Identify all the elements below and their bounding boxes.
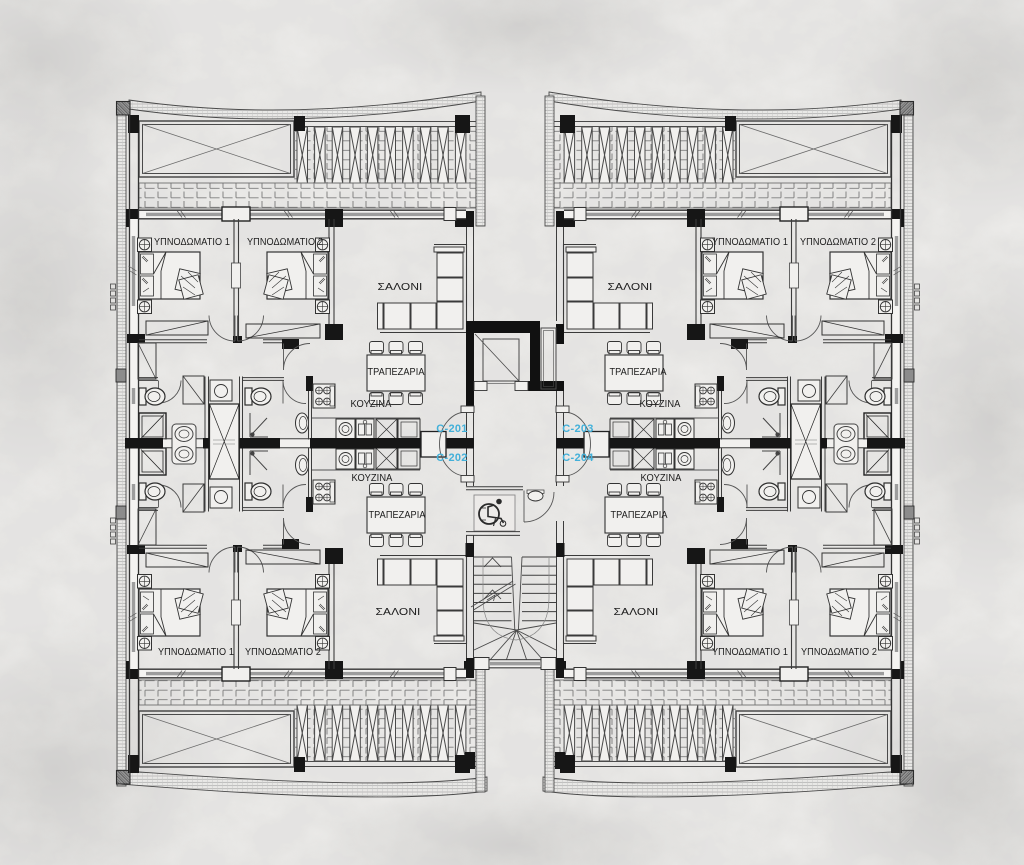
svg-text:ΥΠΝΟΔΩΜΑΤΙΟ 2: ΥΠΝΟΔΩΜΑΤΙΟ 2 <box>245 646 321 658</box>
svg-text:ΣΑΛΟΝΙ: ΣΑΛΟΝΙ <box>378 281 423 293</box>
svg-text:C-204: C-204 <box>562 452 594 464</box>
svg-text:C-202: C-202 <box>436 452 467 464</box>
svg-text:ΥΠΝΟΔΩΜΑΤΙΟ 2: ΥΠΝΟΔΩΜΑΤΙΟ 2 <box>801 646 877 658</box>
svg-text:ΣΑΛΟΝΙ: ΣΑΛΟΝΙ <box>614 606 659 618</box>
svg-text:ΤΡΑΠΕΖΑΡΙΑ: ΤΡΑΠΕΖΑΡΙΑ <box>611 509 668 521</box>
svg-text:ΥΠΝΟΔΩΜΑΤΙΟ 1: ΥΠΝΟΔΩΜΑΤΙΟ 1 <box>712 236 788 248</box>
svg-text:ΥΠΝΟΔΩΜΑΤΙΟ 2: ΥΠΝΟΔΩΜΑΤΙΟ 2 <box>247 236 323 248</box>
svg-text:ΥΠΝΟΔΩΜΑΤΙΟ 1: ΥΠΝΟΔΩΜΑΤΙΟ 1 <box>154 236 230 248</box>
svg-text:C-203: C-203 <box>562 423 593 435</box>
svg-text:ΥΠΝΟΔΩΜΑΤΙΟ 1: ΥΠΝΟΔΩΜΑΤΙΟ 1 <box>158 646 234 658</box>
svg-text:ΚΟΥΖΙΝΑ: ΚΟΥΖΙΝΑ <box>640 398 681 410</box>
svg-text:ΥΠΝΟΔΩΜΑΤΙΟ 1: ΥΠΝΟΔΩΜΑΤΙΟ 1 <box>712 646 788 658</box>
svg-text:ΚΟΥΖΙΝΑ: ΚΟΥΖΙΝΑ <box>641 472 682 484</box>
svg-text:ΣΑΛΟΝΙ: ΣΑΛΟΝΙ <box>608 281 653 293</box>
svg-text:ΤΡΑΠΕΖΑΡΙΑ: ΤΡΑΠΕΖΑΡΙΑ <box>368 366 425 378</box>
svg-text:ΚΟΥΖΙΝΑ: ΚΟΥΖΙΝΑ <box>351 398 392 410</box>
svg-text:ΥΠΝΟΔΩΜΑΤΙΟ 2: ΥΠΝΟΔΩΜΑΤΙΟ 2 <box>800 236 876 248</box>
svg-text:ΚΟΥΖΙΝΑ: ΚΟΥΖΙΝΑ <box>352 472 393 484</box>
svg-text:C-201: C-201 <box>436 423 467 435</box>
svg-text:ΤΡΑΠΕΖΑΡΙΑ: ΤΡΑΠΕΖΑΡΙΑ <box>610 366 667 378</box>
svg-text:ΤΡΑΠΕΖΑΡΙΑ: ΤΡΑΠΕΖΑΡΙΑ <box>369 509 426 521</box>
svg-text:ΣΑΛΟΝΙ: ΣΑΛΟΝΙ <box>376 606 421 618</box>
